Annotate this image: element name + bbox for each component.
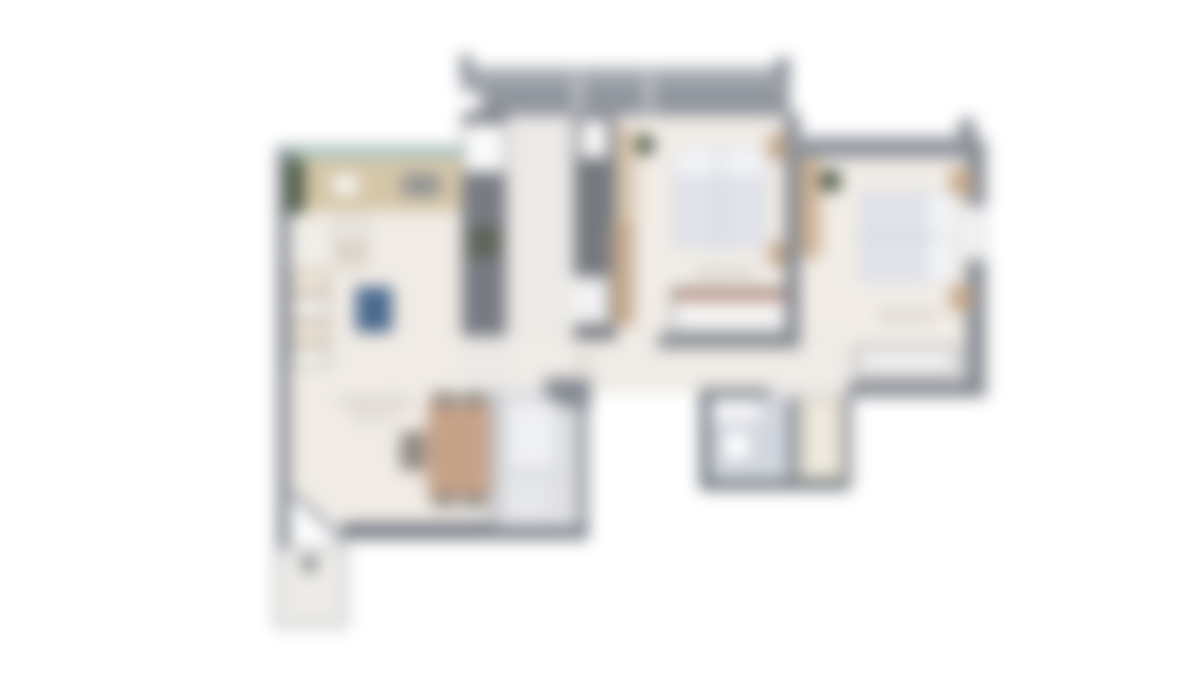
svg-text:HALL: HALL [572,357,597,368]
svg-text:BEDROOM: BEDROOM [697,268,754,280]
svg-text:14.2 m2: 14.2 m2 [352,410,392,422]
svg-text:BEDROOM: BEDROOM [880,310,937,322]
svg-text:LIVING ROOM: LIVING ROOM [338,397,411,409]
